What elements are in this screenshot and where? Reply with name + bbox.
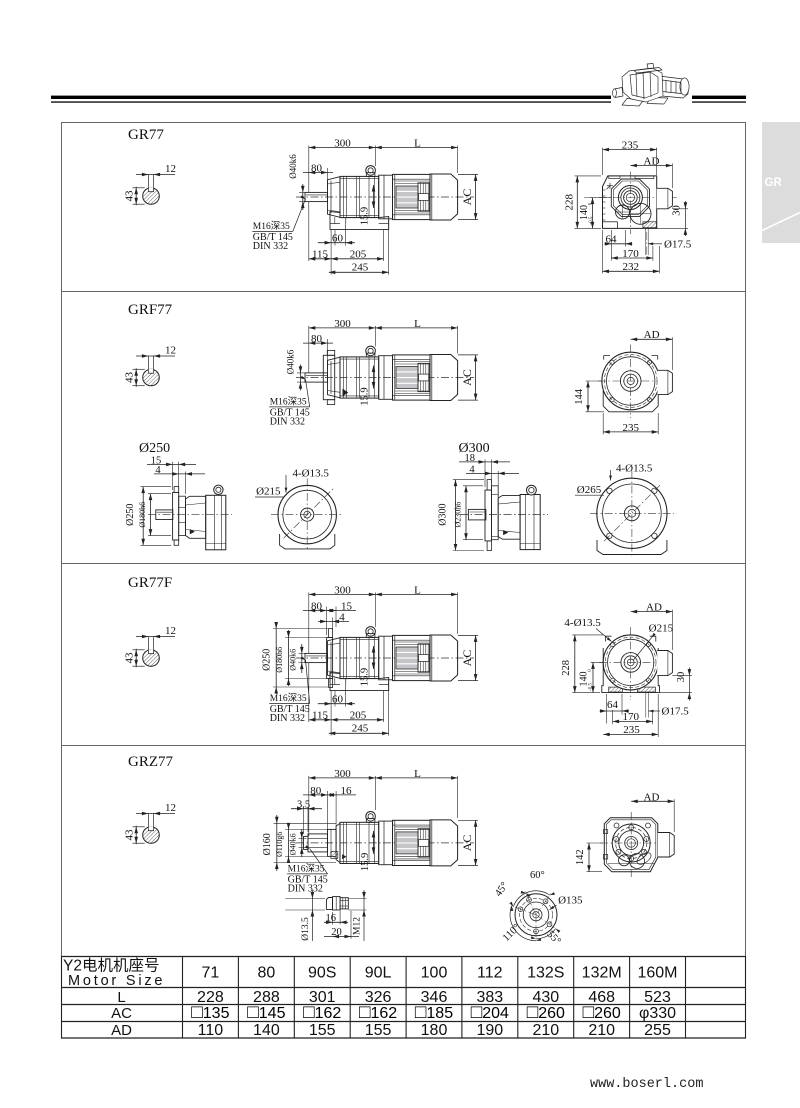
svg-text:Y2电机机座号: Y2电机机座号: [63, 957, 159, 975]
svg-text:DIN 332: DIN 332: [270, 713, 305, 724]
svg-text:245: 245: [352, 262, 369, 274]
svg-text:90S: 90S: [308, 964, 336, 981]
svg-text:60°: 60°: [530, 870, 545, 881]
svg-text:170: 170: [622, 711, 639, 723]
svg-text:80: 80: [311, 601, 323, 613]
svg-text:190: 190: [476, 1022, 503, 1039]
svg-text:Ø300: Ø300: [438, 503, 449, 525]
svg-text:170: 170: [622, 248, 639, 260]
svg-text:228: 228: [561, 660, 572, 676]
svg-text:210: 210: [532, 1022, 559, 1039]
svg-text:3.5: 3.5: [297, 800, 310, 811]
svg-text:144: 144: [574, 388, 585, 405]
svg-text:M12: M12: [352, 917, 362, 935]
svg-text:245: 245: [352, 723, 369, 735]
svg-text:L: L: [414, 138, 421, 150]
svg-text:30: 30: [676, 672, 687, 683]
svg-text:Ø135: Ø135: [558, 894, 583, 906]
svg-text:235: 235: [623, 724, 640, 736]
svg-text:Ø230h6: Ø230h6: [453, 502, 462, 528]
svg-text:15.9: 15.9: [359, 387, 370, 405]
svg-text:GR77F: GR77F: [128, 575, 172, 591]
svg-text:□162: □162: [359, 1002, 397, 1023]
svg-text:232: 232: [623, 261, 640, 273]
svg-text:4: 4: [469, 464, 475, 475]
svg-text:M16深35: M16深35: [270, 693, 307, 704]
svg-text:□185: □185: [415, 1002, 453, 1023]
svg-text:M16深35: M16深35: [288, 864, 325, 875]
svg-text:AC: AC: [460, 369, 474, 386]
svg-text:Ø215: Ø215: [256, 486, 281, 498]
svg-text:300: 300: [334, 318, 351, 330]
svg-text:DIN 332: DIN 332: [270, 417, 305, 428]
svg-text:235: 235: [622, 140, 639, 152]
svg-text:□162: □162: [303, 1002, 341, 1023]
svg-text:AD: AD: [646, 602, 662, 614]
svg-text:Ø180h6: Ø180h6: [138, 502, 147, 528]
svg-text:523: 523: [644, 989, 671, 1006]
svg-text:210: 210: [588, 1022, 615, 1039]
svg-text:12: 12: [165, 625, 176, 637]
svg-text:43: 43: [124, 372, 136, 384]
svg-text:180: 180: [421, 1022, 448, 1039]
svg-text:L: L: [117, 989, 125, 1006]
svg-text:18: 18: [465, 453, 476, 464]
svg-text:4-Ø13.5: 4-Ø13.5: [564, 617, 601, 629]
svg-text:www.boserl.com: www.boserl.com: [590, 1077, 703, 1092]
svg-text:AD: AD: [644, 791, 660, 803]
svg-text:M16深35: M16深35: [253, 221, 290, 232]
svg-text:300: 300: [334, 138, 351, 150]
svg-text:Ø215: Ø215: [649, 623, 674, 635]
svg-text:300: 300: [334, 768, 351, 780]
svg-text:71: 71: [202, 964, 220, 981]
svg-text:AD: AD: [644, 155, 660, 167]
svg-text:GRZ77: GRZ77: [128, 754, 174, 770]
svg-text:115: 115: [312, 249, 329, 261]
svg-text:15.9: 15.9: [360, 853, 371, 871]
svg-text:Ø110g6: Ø110g6: [275, 832, 284, 857]
svg-text:100: 100: [421, 964, 448, 981]
svg-text:Ø13.5: Ø13.5: [301, 917, 311, 941]
svg-text:90L: 90L: [365, 964, 392, 981]
svg-text:AD: AD: [644, 329, 660, 341]
svg-text:M16深35: M16深35: [270, 397, 307, 408]
svg-text:155: 155: [365, 1022, 392, 1039]
svg-text:30: 30: [672, 205, 683, 216]
svg-text:GRF77: GRF77: [128, 302, 173, 318]
svg-text:110: 110: [198, 1022, 224, 1039]
svg-text:12: 12: [165, 163, 176, 175]
svg-text:4-Ø13.5: 4-Ø13.5: [616, 463, 653, 475]
svg-text:12: 12: [165, 344, 176, 356]
svg-text:4: 4: [339, 611, 345, 623]
svg-text:□135: □135: [191, 1002, 229, 1023]
svg-text:Ø250: Ø250: [262, 649, 273, 671]
svg-text:L: L: [414, 768, 421, 780]
svg-text:80: 80: [310, 785, 322, 797]
svg-text:15.9: 15.9: [359, 207, 370, 225]
svg-text:-0.5: -0.5: [589, 216, 594, 224]
svg-text:Ø180h6: Ø180h6: [275, 647, 284, 673]
svg-text:132M: 132M: [582, 964, 622, 981]
svg-text:228: 228: [564, 193, 576, 210]
svg-text:64: 64: [606, 234, 618, 246]
svg-text:255: 255: [644, 1022, 671, 1039]
svg-text:20: 20: [331, 927, 342, 938]
svg-text:4-Ø13.5: 4-Ø13.5: [293, 467, 330, 479]
svg-text:Ø17.5: Ø17.5: [662, 705, 690, 717]
svg-text:-0.5: -0.5: [589, 683, 594, 691]
svg-text:112: 112: [477, 964, 503, 981]
svg-text:Ø250: Ø250: [125, 504, 136, 526]
svg-text:80: 80: [258, 964, 276, 981]
svg-text:Ø40k6: Ø40k6: [288, 154, 298, 179]
svg-text:φ330: φ330: [639, 1005, 676, 1022]
svg-text:□204: □204: [471, 1002, 509, 1023]
svg-text:Ø265: Ø265: [577, 484, 602, 496]
svg-text:155: 155: [309, 1022, 336, 1039]
svg-text:4: 4: [155, 465, 161, 476]
svg-text:16: 16: [326, 913, 337, 924]
svg-text:142: 142: [575, 849, 586, 865]
svg-text:□145: □145: [247, 1002, 285, 1023]
svg-text:16: 16: [341, 785, 353, 797]
svg-text:AC: AC: [460, 189, 474, 206]
svg-text:DIN 332: DIN 332: [288, 884, 323, 895]
svg-text:Ø40k6: Ø40k6: [286, 349, 296, 374]
svg-text:□260: □260: [527, 1002, 565, 1023]
svg-text:Ø250: Ø250: [139, 441, 170, 456]
svg-text:Ø40k6: Ø40k6: [288, 833, 297, 855]
svg-text:64: 64: [607, 699, 619, 711]
svg-text:L: L: [414, 318, 421, 330]
svg-text:300: 300: [334, 584, 351, 596]
svg-text:132S: 132S: [527, 964, 564, 981]
svg-text:80: 80: [311, 163, 323, 175]
svg-text:12: 12: [165, 802, 176, 814]
svg-text:DIN 332: DIN 332: [253, 241, 288, 252]
svg-text:235: 235: [622, 422, 639, 434]
svg-text:Ø40k6: Ø40k6: [288, 649, 297, 671]
svg-text:43: 43: [124, 190, 136, 202]
svg-text:Ø17.5: Ø17.5: [664, 238, 692, 250]
svg-text:140: 140: [253, 1022, 280, 1039]
svg-text:80: 80: [311, 333, 323, 345]
svg-text:43: 43: [124, 652, 136, 664]
svg-text:AC: AC: [111, 1005, 132, 1022]
svg-text:43: 43: [124, 829, 136, 841]
svg-text:AD: AD: [111, 1022, 132, 1039]
svg-text:160M: 160M: [637, 964, 677, 981]
svg-text:GR: GR: [765, 177, 783, 189]
svg-text:L: L: [414, 584, 421, 596]
svg-text:Ø160: Ø160: [262, 833, 273, 855]
svg-text:GR77: GR77: [128, 127, 164, 143]
svg-text:15.9: 15.9: [359, 668, 370, 686]
svg-text:205: 205: [350, 710, 367, 722]
svg-text:AC: AC: [460, 650, 474, 667]
svg-text:60: 60: [332, 233, 344, 245]
svg-text:205: 205: [350, 249, 367, 261]
svg-text:Motor Size: Motor Size: [68, 973, 165, 989]
svg-text:AC: AC: [460, 835, 474, 852]
svg-text:60: 60: [332, 694, 344, 706]
svg-text:115: 115: [312, 710, 329, 722]
svg-text:□260: □260: [583, 1002, 621, 1023]
